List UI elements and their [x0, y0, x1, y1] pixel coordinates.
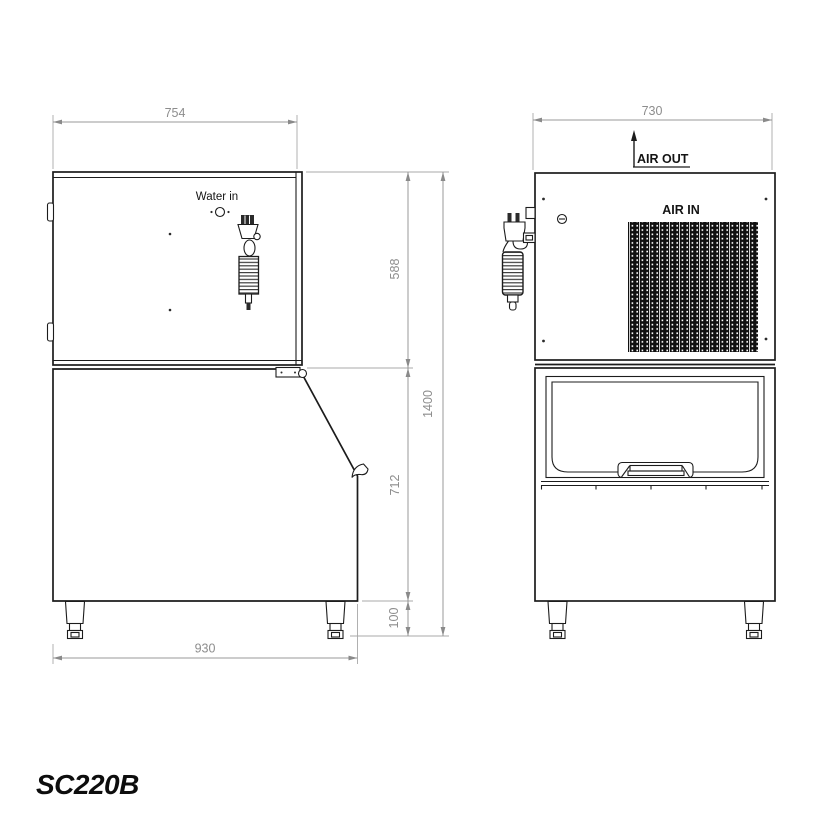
water-in-label: Water in: [196, 191, 238, 203]
storage-bin-front: [535, 368, 775, 601]
panel-screw: [169, 233, 172, 236]
dim-base-depth: 930: [53, 604, 358, 664]
air-grille: [628, 222, 758, 352]
lid-hinge-bracket: [276, 368, 300, 378]
power-plug-icon: [503, 213, 536, 310]
dim-label-730: 730: [642, 104, 663, 118]
machine-foot: [548, 602, 567, 639]
cord-notch: [526, 208, 535, 219]
cord-coil: [503, 252, 524, 295]
side-view: 754 Water in: [48, 106, 450, 664]
bin-door-handle-side: [352, 464, 368, 478]
head-unit-front: AIR IN: [526, 173, 775, 365]
panel-screw: [542, 198, 545, 201]
dim-total-height: 1400: [421, 172, 443, 636]
machine-foot: [326, 602, 345, 639]
dim-label-754: 754: [165, 106, 186, 120]
bin-handle: [618, 463, 693, 478]
dim-label-588: 588: [388, 259, 402, 280]
front-view: 730 AIR OUT AIR IN: [503, 104, 776, 639]
drawing-svg: 754 Water in: [0, 0, 832, 832]
dim-label-930: 930: [195, 642, 216, 656]
panel-screw: [765, 338, 768, 341]
panel-screw: [542, 340, 545, 343]
panel-screw: [169, 309, 172, 312]
air-in-label: AIR IN: [662, 203, 700, 217]
hinge-tab: [48, 203, 54, 221]
hinge-pivot: [299, 370, 307, 378]
dim-upper-height: 588: [388, 172, 408, 368]
panel-screw: [765, 198, 768, 201]
head-unit-side: [48, 172, 303, 365]
machine-foot: [745, 602, 764, 639]
dim-label-712: 712: [388, 475, 402, 496]
dim-foot-height: 100: [387, 601, 408, 636]
technical-drawing-canvas: 754 Water in: [0, 0, 832, 832]
dim-label-1400: 1400: [421, 390, 435, 418]
model-label: SC220B: [36, 769, 139, 800]
air-out-label: AIR OUT: [637, 152, 689, 166]
dim-lower-height: 712: [388, 368, 408, 601]
air-out-annotation: AIR OUT: [631, 130, 690, 167]
dim-label-100: 100: [387, 608, 401, 629]
storage-bin-side: [53, 368, 368, 602]
water-coil: [239, 257, 259, 295]
machine-foot: [66, 602, 85, 639]
hinge-tab: [48, 323, 54, 341]
dim-top-width: 754: [53, 106, 297, 169]
